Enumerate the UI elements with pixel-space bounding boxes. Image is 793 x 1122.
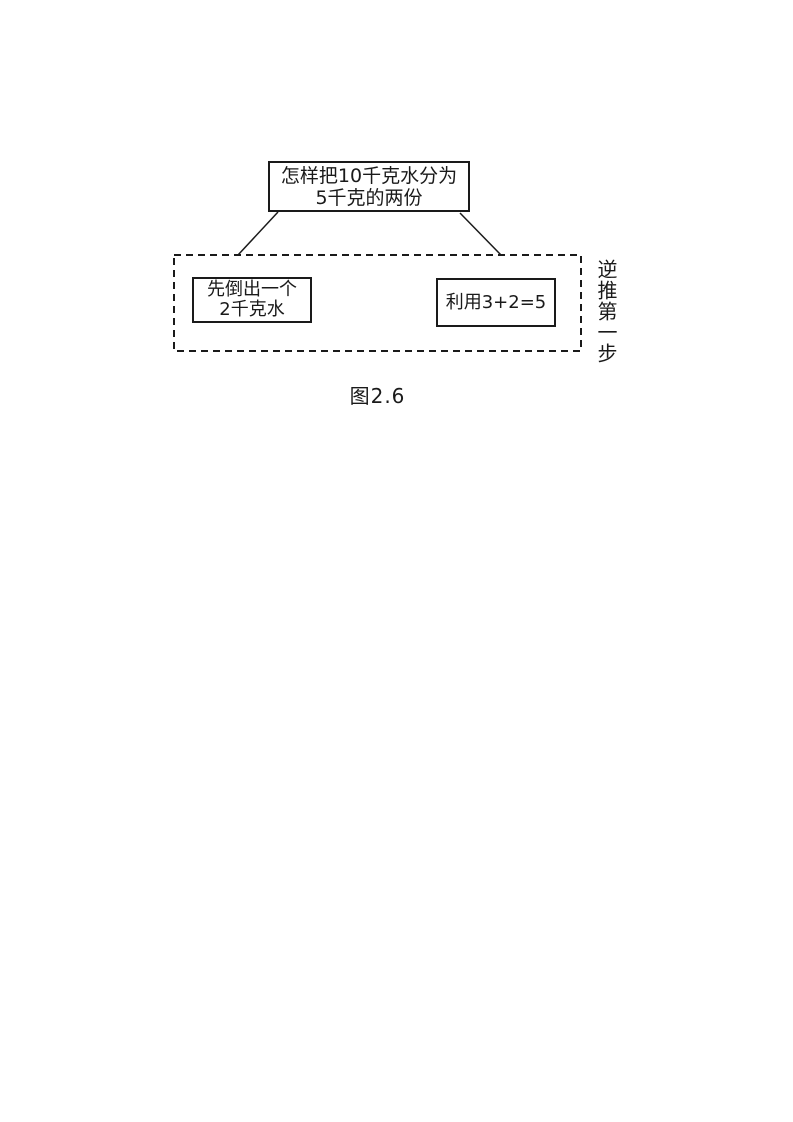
right-step-label: 利用3+2=5 xyxy=(446,292,547,314)
left-step-line2: 2千克水 xyxy=(219,300,284,320)
figure-caption: 图2.6 xyxy=(173,380,582,409)
right-step-box: 利用3+2=5 xyxy=(436,278,556,327)
side-vertical-label: 逆推第一步 xyxy=(593,259,619,369)
diagram-lines xyxy=(0,0,793,430)
left-step-line1: 先倒出一个 xyxy=(207,280,297,300)
top-question-line1: 怎样把10千克水分为 xyxy=(281,165,457,187)
document-page: 怎样把10千克水分为 5千克的两份 先倒出一个 2千克水 利用3+2=5 逆推第… xyxy=(0,0,793,1122)
connector-left-line xyxy=(238,212,278,255)
top-question-line2: 5千克的两份 xyxy=(315,187,422,209)
top-question-box: 怎样把10千克水分为 5千克的两份 xyxy=(268,161,470,212)
connector-right-line xyxy=(460,213,501,255)
left-step-box: 先倒出一个 2千克水 xyxy=(192,277,312,323)
